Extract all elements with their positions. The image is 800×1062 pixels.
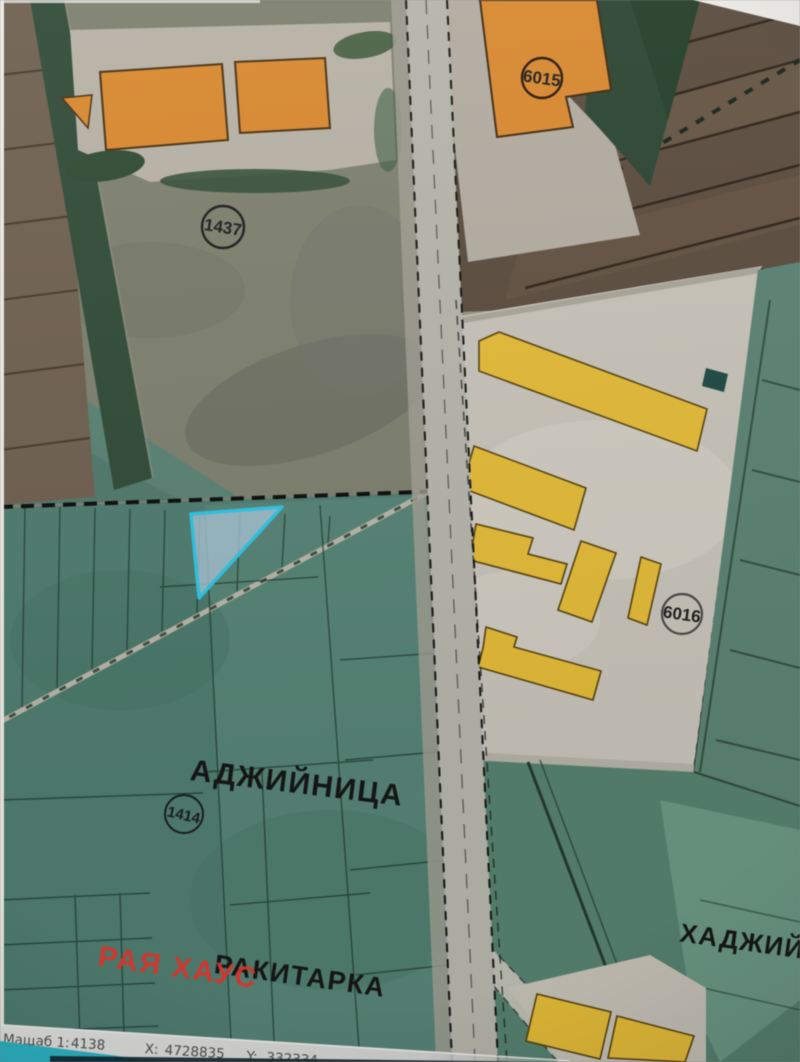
orange-building-east[interactable] bbox=[235, 58, 330, 133]
cadastral-map-canvas[interactable]: 1437 6015 bbox=[0, 0, 800, 1062]
orange-building-west[interactable] bbox=[100, 64, 228, 150]
x-label: X: bbox=[144, 1041, 159, 1058]
screenshot-stage: 1437 6015 bbox=[0, 0, 800, 1062]
